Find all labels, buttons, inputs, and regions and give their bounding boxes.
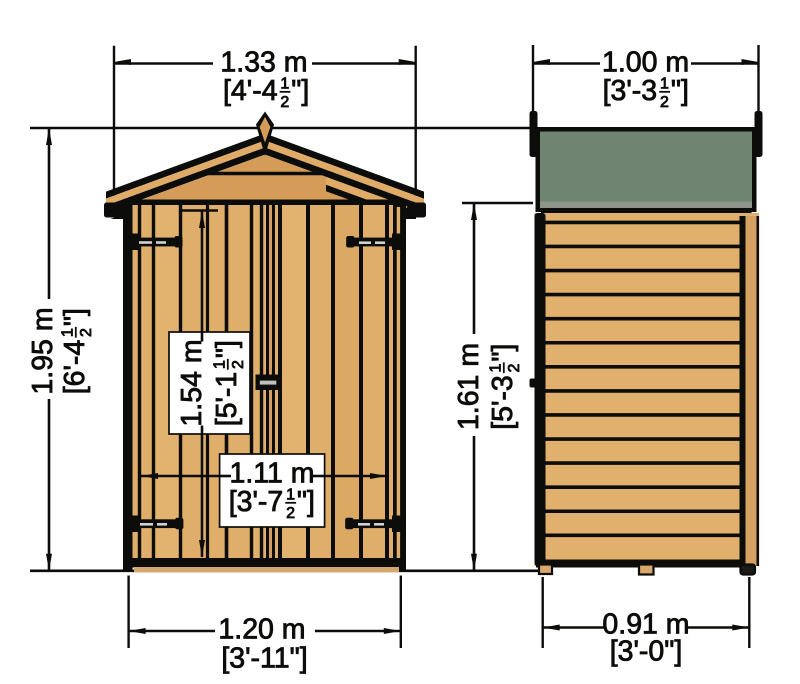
svg-text:2: 2 [280, 94, 289, 111]
svg-text:1: 1 [660, 76, 669, 93]
svg-text:"]: "] [211, 340, 243, 358]
svg-text:1.61 m: 1.61 m [453, 343, 485, 430]
svg-text:2: 2 [78, 328, 95, 337]
svg-text:1.33 m: 1.33 m [220, 47, 307, 79]
svg-text:1: 1 [488, 363, 505, 372]
svg-text:"]: "] [297, 486, 315, 518]
svg-text:"]: "] [487, 344, 519, 362]
svg-text:1.95 m: 1.95 m [27, 307, 59, 394]
svg-text:2: 2 [230, 360, 247, 369]
svg-text:2: 2 [660, 94, 669, 111]
svg-text:1.54 m: 1.54 m [176, 339, 208, 426]
svg-text:1: 1 [286, 487, 295, 504]
svg-text:"]: "] [59, 308, 91, 326]
svg-text:"]: "] [291, 75, 309, 107]
svg-text:1: 1 [280, 76, 289, 93]
svg-text:[3'-3: [3'-3 [603, 75, 658, 107]
svg-text:1.20 m: 1.20 m [218, 614, 305, 646]
svg-text:1.11 m: 1.11 m [229, 458, 314, 490]
svg-text:2: 2 [286, 505, 295, 522]
svg-text:2: 2 [506, 363, 523, 372]
svg-text:1: 1 [60, 328, 77, 337]
svg-text:[5'-3: [5'-3 [487, 375, 519, 430]
svg-text:1: 1 [212, 360, 229, 369]
svg-text:[4'-4: [4'-4 [223, 75, 278, 107]
svg-text:[3'-11"]: [3'-11"] [221, 643, 307, 675]
svg-text:[6'-4: [6'-4 [59, 340, 91, 395]
svg-text:[3'-7: [3'-7 [229, 486, 284, 518]
svg-text:1.00 m: 1.00 m [602, 47, 689, 79]
svg-text:[3'-0"]: [3'-0"] [610, 636, 683, 668]
svg-text:[5'-1: [5'-1 [211, 372, 243, 427]
svg-text:"]: "] [671, 75, 689, 107]
